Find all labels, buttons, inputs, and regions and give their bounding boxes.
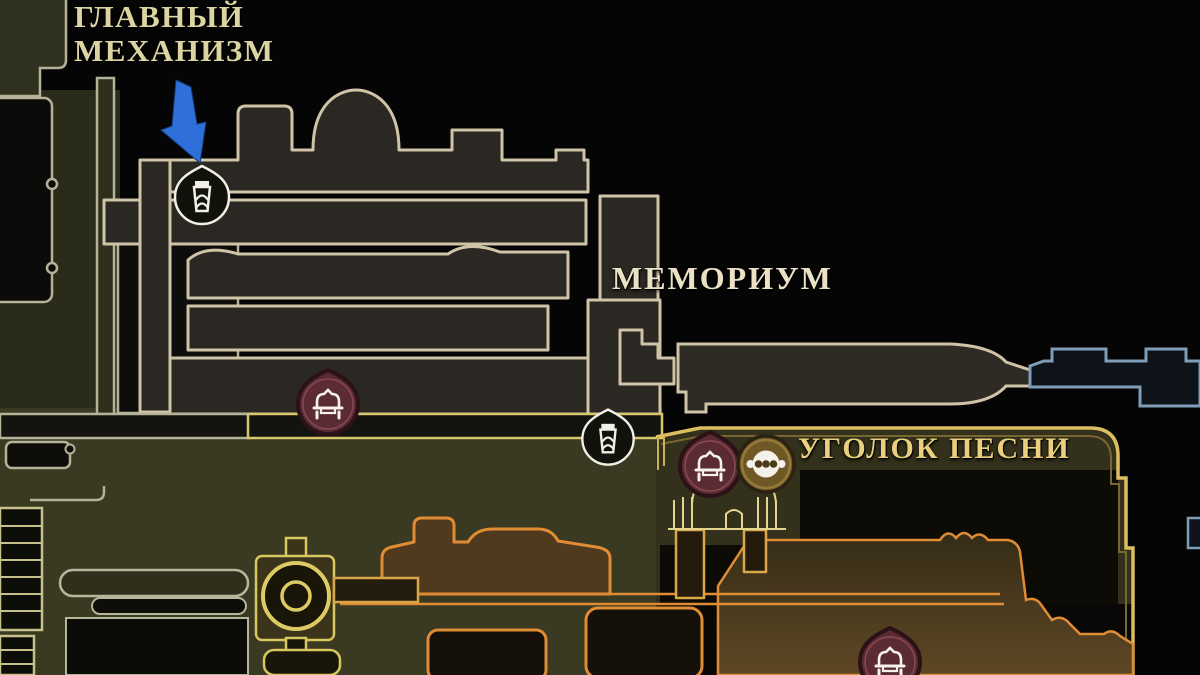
label-main-mechanism: ГЛАВНЫЙ МЕХАНИЗМ — [74, 0, 275, 68]
map-room — [66, 618, 248, 675]
game-map-canvas[interactable] — [0, 0, 1200, 675]
map-room — [0, 98, 52, 302]
label-song-corner: УГОЛОК ПЕСНИ — [798, 432, 1071, 466]
map-knob — [47, 263, 57, 273]
bead-dot — [755, 460, 763, 468]
map-room — [586, 608, 702, 675]
blue-room-edge — [1188, 518, 1200, 548]
map-corridor — [334, 578, 418, 602]
map-knob — [66, 445, 75, 454]
memorium-left-wall — [140, 160, 170, 412]
east-hall — [678, 344, 1030, 412]
bead-dot — [762, 460, 770, 468]
bead-vendor-marker-song-corner[interactable] — [738, 436, 794, 492]
map-shaft — [97, 78, 114, 414]
map-knob — [47, 179, 57, 189]
memorium-floor — [188, 306, 548, 350]
map-room — [6, 442, 70, 468]
ladder-room — [0, 636, 34, 675]
map-shaft — [676, 530, 704, 598]
map-room — [264, 650, 340, 675]
game-map-screenshot: ГЛАВНЫЙ МЕХАНИЗМ МЕМОРИУМ УГОЛОК ПЕСНИ — [0, 0, 1200, 675]
bead-dot — [770, 460, 778, 468]
map-shaft — [744, 530, 766, 572]
pill-room — [92, 598, 246, 614]
label-memorium: МЕМОРИУМ — [612, 260, 833, 297]
label-main-mechanism-line1: ГЛАВНЫЙ — [74, 0, 275, 34]
gear-hub — [282, 582, 310, 610]
memorium-floor — [150, 358, 660, 414]
pill-room — [60, 570, 248, 596]
corridor-west — [0, 414, 250, 438]
label-main-mechanism-line2: МЕХАНИЗМ — [74, 34, 275, 68]
map-room — [428, 630, 546, 675]
memorium-floor — [188, 246, 568, 298]
